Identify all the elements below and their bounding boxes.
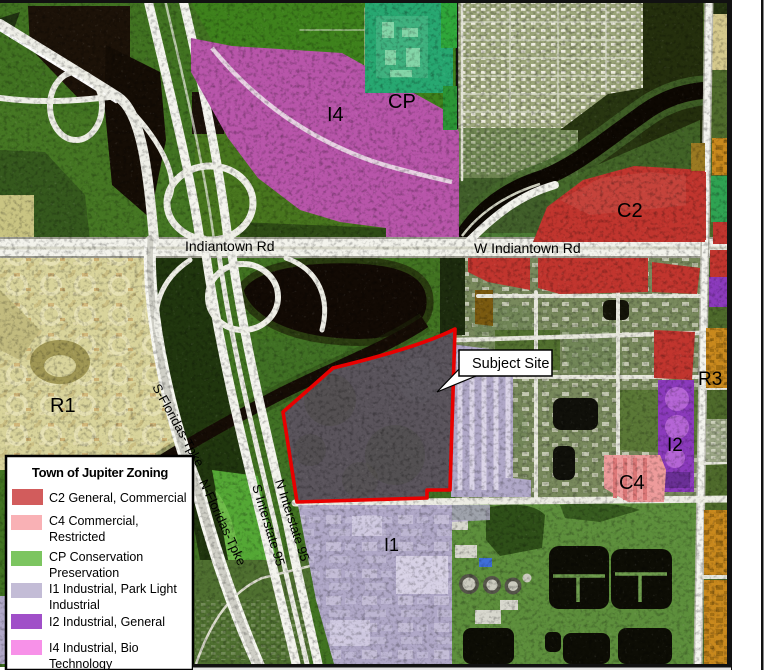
svg-text:I4: I4: [327, 104, 344, 126]
svg-text:Restricted: Restricted: [49, 530, 105, 544]
svg-text:C4: C4: [619, 472, 645, 494]
svg-text:CP Conservation: CP Conservation: [49, 550, 143, 564]
svg-text:I2 Industrial, General: I2 Industrial, General: [49, 615, 165, 629]
svg-text:R3: R3: [698, 369, 722, 390]
svg-text:C2 General, Commercial: C2 General, Commercial: [49, 491, 187, 505]
svg-text:C4 Commercial,: C4 Commercial,: [49, 514, 139, 528]
svg-text:I2: I2: [667, 435, 683, 456]
svg-text:Industrial: Industrial: [49, 598, 100, 612]
svg-text:Town of Jupiter Zoning: Town of Jupiter Zoning: [32, 465, 168, 480]
svg-text:I1 Industrial, Park Light: I1 Industrial, Park Light: [49, 582, 177, 596]
svg-text:Indiantown Rd: Indiantown Rd: [185, 238, 275, 254]
svg-text:Preservation: Preservation: [49, 566, 119, 580]
svg-text:R1: R1: [50, 395, 76, 417]
svg-text:I4 Industrial, Bio: I4 Industrial, Bio: [49, 641, 139, 655]
svg-text:C2: C2: [617, 200, 643, 222]
svg-text:Subject Site: Subject Site: [472, 356, 549, 372]
svg-text:W Indiantown Rd: W Indiantown Rd: [474, 240, 581, 256]
svg-text:I1: I1: [384, 535, 399, 555]
svg-text:Technology: Technology: [49, 657, 113, 670]
svg-text:CP: CP: [388, 91, 416, 113]
